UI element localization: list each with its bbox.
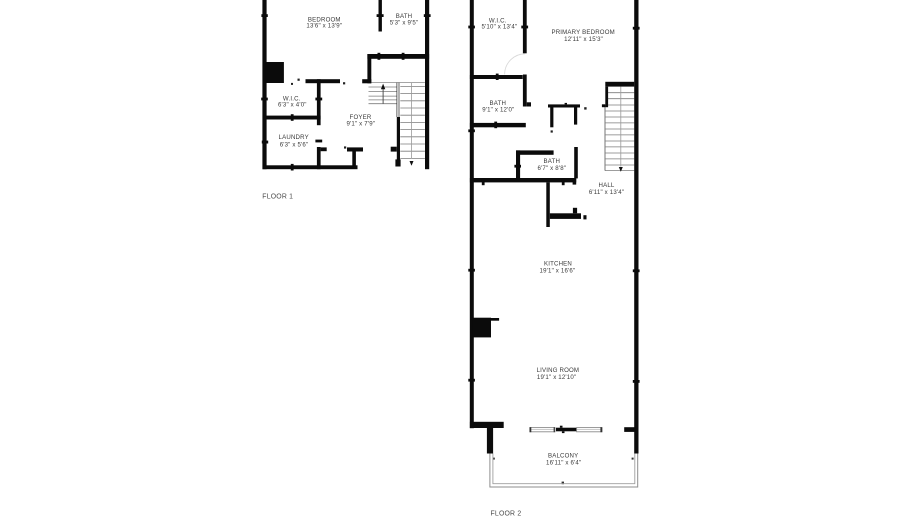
svg-text:19'1" x 16'6": 19'1" x 16'6" <box>540 267 576 274</box>
svg-text:9'1" x 12'0": 9'1" x 12'0" <box>482 107 514 114</box>
svg-text:LAUNDRY: LAUNDRY <box>279 134 309 141</box>
svg-text:FLOOR 1: FLOOR 1 <box>262 193 293 200</box>
svg-text:13'6" x 13'9": 13'6" x 13'9" <box>306 23 342 30</box>
svg-text:9'1" x 7'9": 9'1" x 7'9" <box>346 121 375 128</box>
svg-text:5'3" x 9'5": 5'3" x 9'5" <box>390 19 419 26</box>
svg-text:6'3" x 5'6": 6'3" x 5'6" <box>280 142 309 149</box>
svg-text:5'10" x 13'4": 5'10" x 13'4" <box>482 24 518 31</box>
svg-text:LIVING ROOM: LIVING ROOM <box>537 367 580 374</box>
svg-text:FLOOR 2: FLOOR 2 <box>491 510 522 517</box>
svg-text:6'11" x 13'4": 6'11" x 13'4" <box>589 189 624 196</box>
svg-text:16'11" x 6'4": 16'11" x 6'4" <box>546 460 581 467</box>
svg-text:BALCONY: BALCONY <box>548 452 578 459</box>
svg-text:6'7" x 8'8": 6'7" x 8'8" <box>537 165 566 172</box>
svg-text:PRIMARY BEDROOM: PRIMARY BEDROOM <box>551 29 614 36</box>
svg-text:HALL: HALL <box>599 182 615 189</box>
svg-text:19'1" x 12'10": 19'1" x 12'10" <box>537 374 576 381</box>
svg-text:6'3" x 4'0": 6'3" x 4'0" <box>278 102 307 109</box>
svg-text:12'11" x 15'3": 12'11" x 15'3" <box>564 36 603 43</box>
